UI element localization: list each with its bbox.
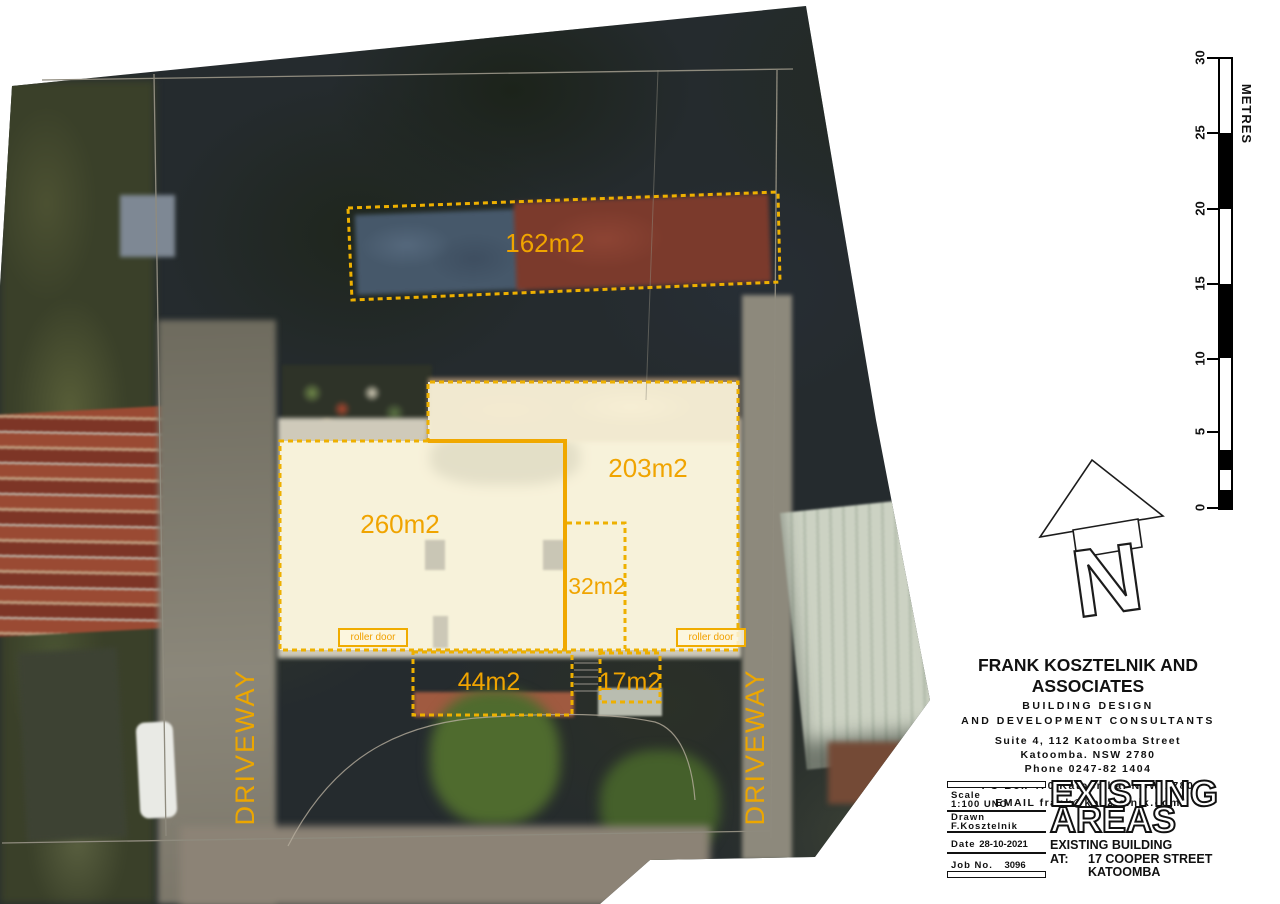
scale-tick-label-25: 25 (1193, 119, 1208, 147)
area-label-162: 162m2 (485, 228, 605, 259)
job-label: Job No. (951, 860, 993, 871)
roller-door-tag-left: roller door (338, 628, 408, 647)
roller-door-tag-right: roller door (676, 628, 746, 647)
area-label-32: 32m2 (537, 573, 657, 600)
gray-shed-roof (120, 195, 175, 257)
area-label-44: 44m2 (429, 668, 549, 697)
scale-tick (1207, 283, 1218, 285)
scale-seg-10-5 (1220, 358, 1231, 431)
skylight-mark-3 (433, 616, 448, 648)
firm-line2: AND DEVELOPMENT CONSULTANTS (940, 715, 1236, 727)
job-row: Job No. 3096 (951, 860, 1026, 871)
title-block-rule (947, 852, 1046, 854)
rust-roof-bottom-right (828, 742, 928, 804)
skylight-mark-1 (425, 540, 445, 570)
title-block-cap-bottom (947, 871, 1046, 878)
scale-seg-30-25 (1220, 59, 1231, 133)
scale-value: 1:100 UNO (951, 799, 1008, 810)
scale-tick (1207, 358, 1218, 360)
area-label-203: 203m2 (588, 453, 708, 484)
scale-seg-sub3 (1220, 470, 1231, 490)
sheet-title-line2: AREAS (1050, 799, 1176, 837)
project-at-label: AT: (1050, 852, 1069, 866)
scale-tick-label-30: 30 (1193, 44, 1208, 72)
project-street: 17 COOPER STREET (1088, 852, 1212, 866)
scale-tick-label-0: 0 (1193, 494, 1208, 522)
green-bush-center (430, 690, 560, 825)
scale-seg-sub2 (1220, 450, 1231, 470)
firm-phone: Phone 0247-82 1404 (940, 763, 1236, 775)
scale-seg-25-20 (1220, 133, 1231, 209)
scale-tick-label-5: 5 (1193, 418, 1208, 446)
job-value: 3096 (1004, 860, 1025, 871)
road-bottom-surface (180, 826, 710, 904)
project-city: KATOOMBA (1088, 865, 1160, 879)
firm-name: FRANK KOSZTELNIK AND ASSOCIATES (940, 655, 1236, 697)
scale-bar (1218, 57, 1233, 510)
scale-seg-15-10 (1220, 284, 1231, 359)
area-label-260: 260m2 (340, 509, 460, 540)
scale-tick (1207, 132, 1218, 134)
sheet-title: EXISTING AREAS (1048, 779, 1268, 837)
driveway-label-right: DRIVEWAY (740, 662, 766, 832)
scale-tick (1207, 208, 1218, 210)
scale-bar-unit-label: METRES (1238, 68, 1254, 160)
scale-seg-sub4 (1220, 490, 1231, 508)
driveway-label-left: DRIVEWAY (230, 662, 256, 832)
date-label: Date (951, 839, 976, 850)
scale-tick-label-15: 15 (1193, 270, 1208, 298)
date-row: Date 28-10-2021 (951, 839, 1028, 850)
scale-seg-sub1 (1220, 431, 1231, 451)
firm-address2: Katoomba. NSW 2780 (940, 749, 1236, 761)
scale-tick (1207, 57, 1218, 59)
skylight-mark-2 (543, 540, 565, 570)
gray-metal-roof-right (780, 498, 948, 769)
scale-tick-label-10: 10 (1193, 345, 1208, 373)
date-value: 28-10-2021 (979, 839, 1028, 850)
dark-roof-building-bottom-left (17, 648, 127, 843)
project-line1: EXISTING BUILDING (1050, 838, 1172, 852)
white-vehicle (136, 721, 178, 819)
scale-tick (1207, 507, 1218, 509)
drawing-sheet: 162m2 203m2 260m2 32m2 44m2 17m2 roller … (0, 0, 1280, 904)
firm-line1: BUILDING DESIGN (940, 700, 1236, 712)
scale-seg-20-15 (1220, 209, 1231, 284)
scale-tick (1207, 431, 1218, 433)
title-block-cap-top (947, 781, 1046, 788)
firm-address1: Suite 4, 112 Katoomba Street (940, 735, 1236, 747)
scale-tick-label-20: 20 (1193, 195, 1208, 223)
area-label-17: 17m2 (570, 668, 690, 697)
north-arrow: N (1030, 436, 1180, 626)
title-block-rule (947, 831, 1046, 833)
